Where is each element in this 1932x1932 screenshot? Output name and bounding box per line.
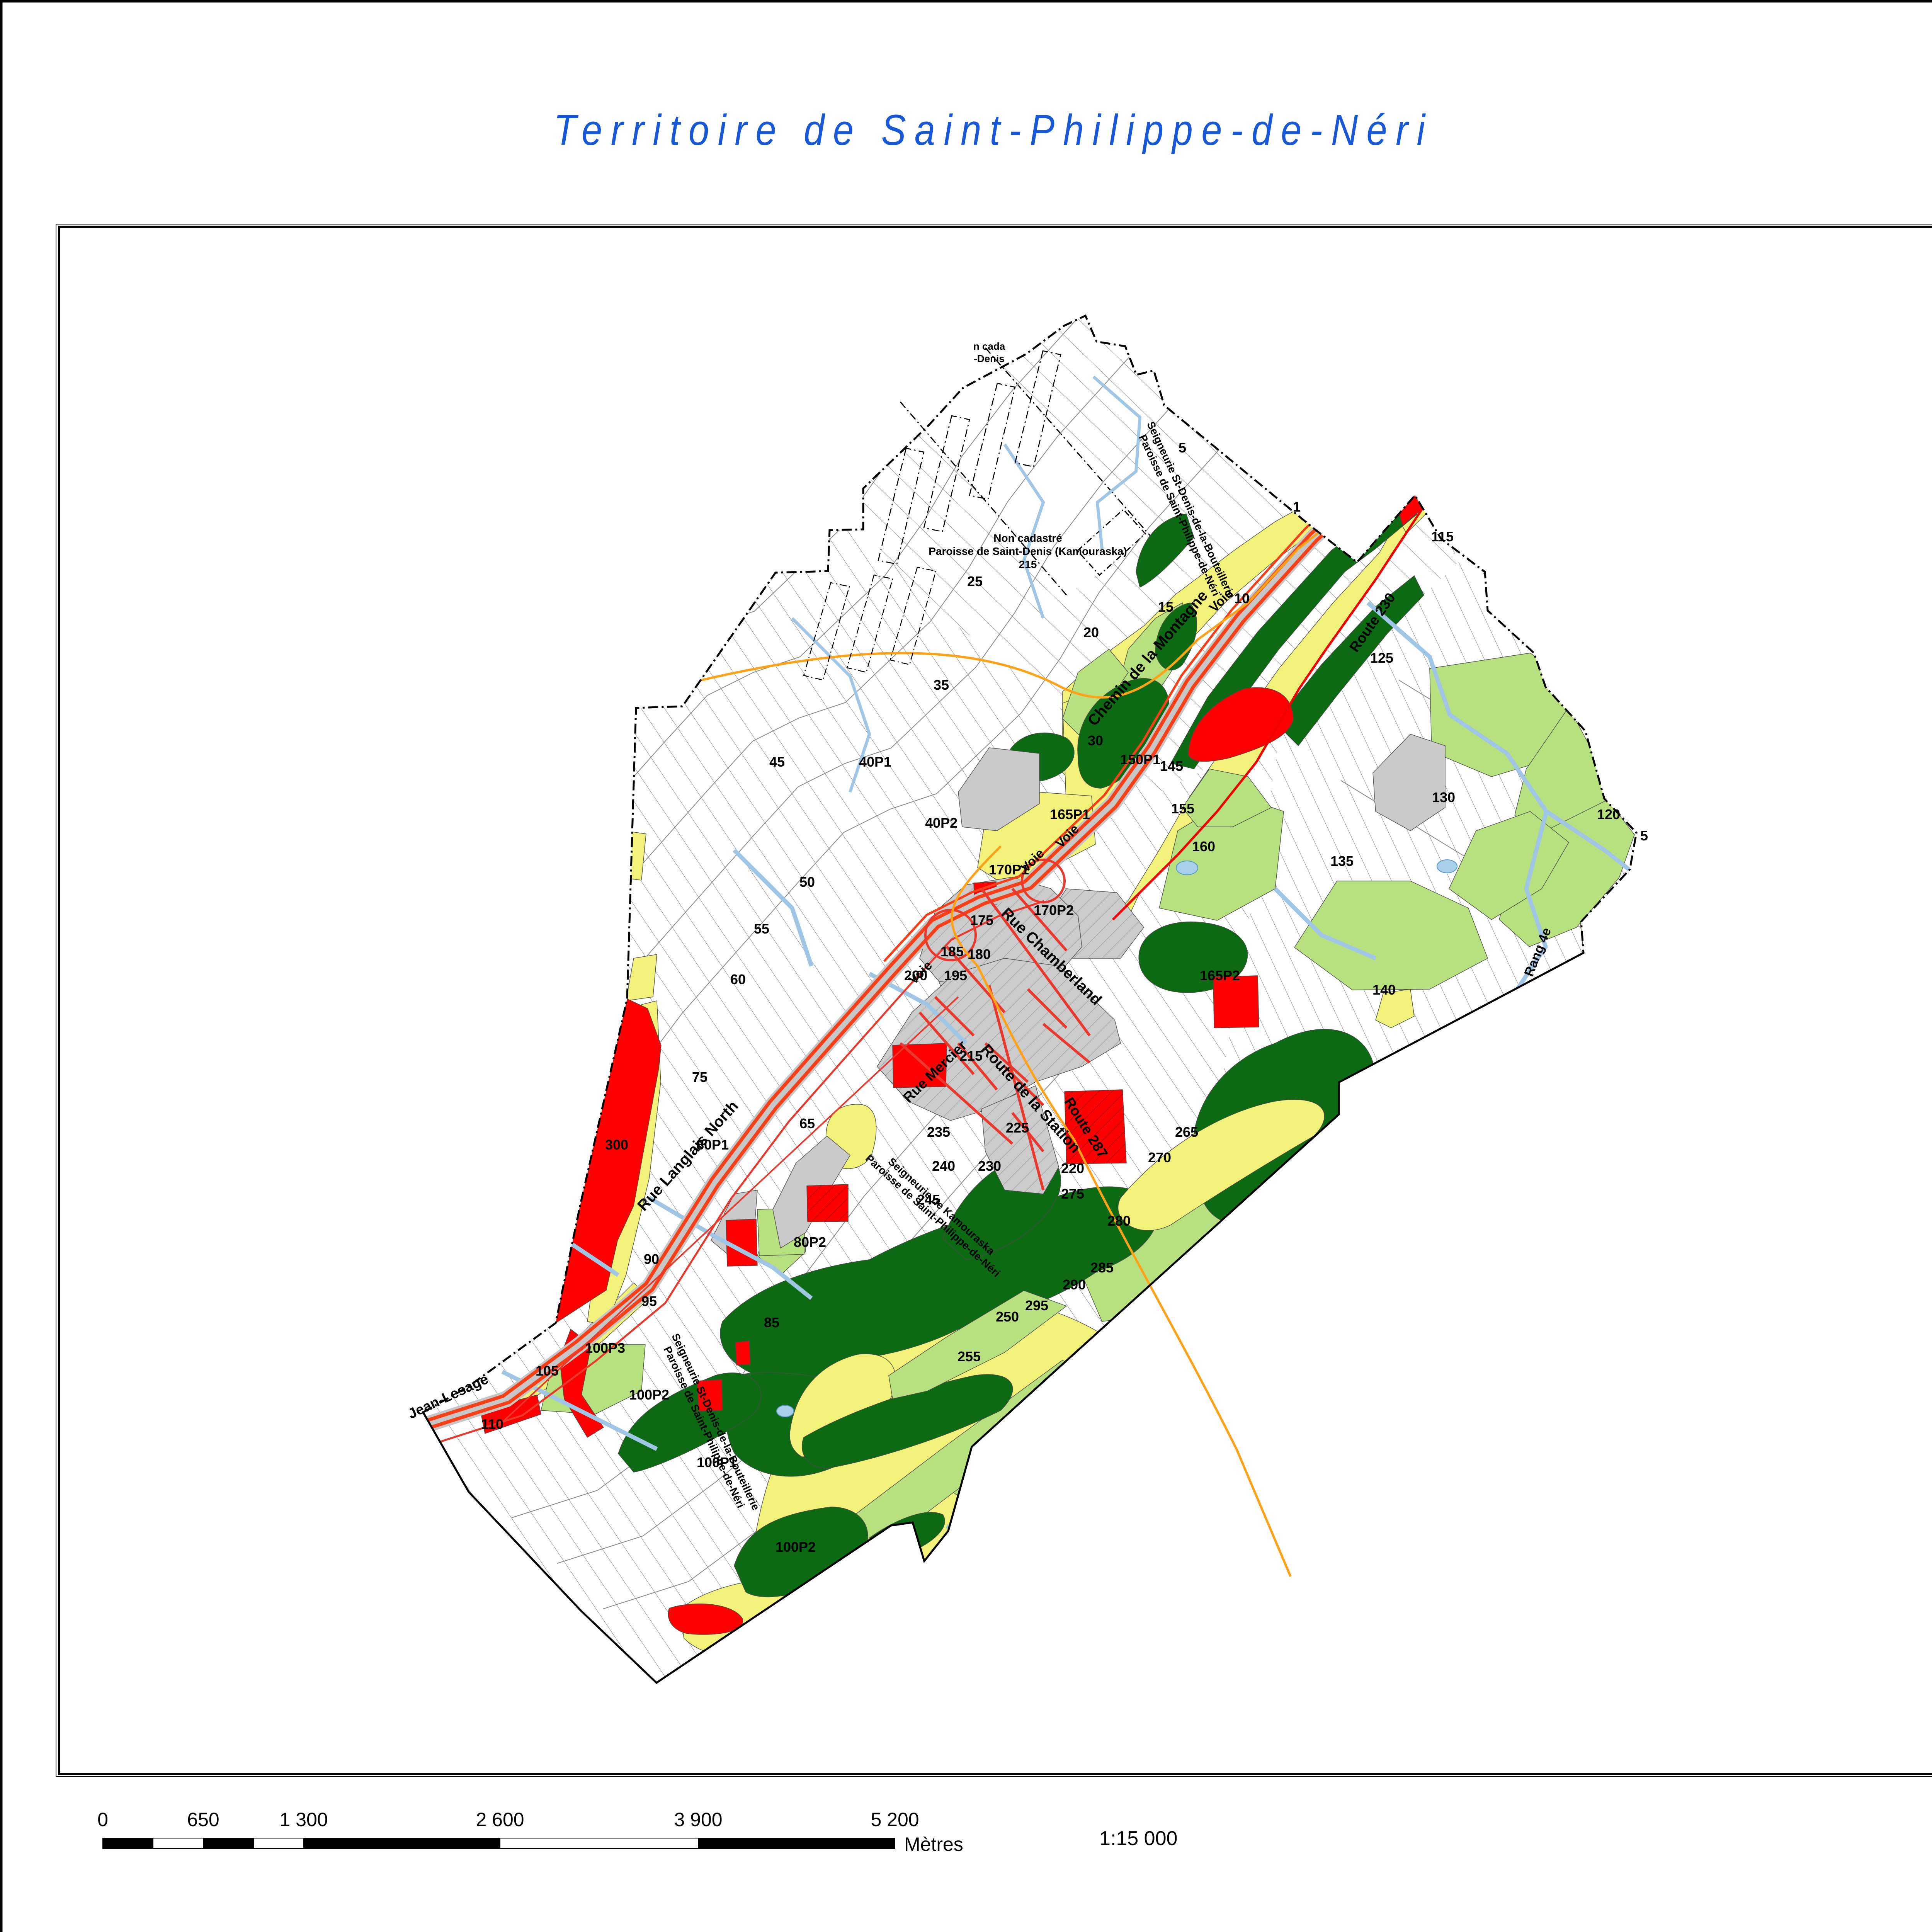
svg-text:265: 265: [1175, 1124, 1198, 1140]
svg-text:220: 220: [1061, 1160, 1084, 1176]
svg-text:650: 650: [187, 1809, 219, 1830]
svg-text:275: 275: [1061, 1186, 1084, 1202]
svg-text:215: 215: [1019, 558, 1037, 570]
svg-text:75: 75: [692, 1069, 707, 1085]
svg-text:90: 90: [644, 1251, 659, 1267]
svg-text:295: 295: [1025, 1298, 1048, 1313]
svg-text:60: 60: [730, 971, 746, 987]
svg-text:185: 185: [940, 944, 964, 959]
svg-text:105: 105: [536, 1363, 559, 1379]
svg-text:50: 50: [799, 874, 815, 890]
svg-text:1: 1: [1293, 499, 1301, 515]
svg-text:100P3: 100P3: [585, 1340, 625, 1356]
svg-text:180: 180: [968, 946, 991, 962]
svg-text:140: 140: [1372, 982, 1396, 998]
svg-text:110: 110: [481, 1416, 503, 1432]
svg-text:165P2: 165P2: [1200, 968, 1240, 983]
svg-text:Mètres: Mètres: [904, 1833, 963, 1855]
svg-text:230: 230: [978, 1158, 1001, 1174]
svg-text:165P1: 165P1: [1050, 806, 1090, 822]
svg-text:n cada: n cada: [973, 340, 1005, 352]
svg-text:Territoire de Saint-Philippe-d: Territoire de Saint-Philippe-de-Néri: [554, 106, 1434, 154]
svg-text:35: 35: [934, 677, 949, 693]
svg-text:285: 285: [1090, 1260, 1114, 1276]
svg-text:40P1: 40P1: [859, 754, 891, 770]
svg-text:3 900: 3 900: [674, 1809, 722, 1830]
svg-text:135: 135: [1330, 853, 1354, 869]
svg-text:20: 20: [1083, 624, 1099, 640]
svg-text:5: 5: [1179, 440, 1186, 456]
svg-text:30: 30: [1088, 733, 1103, 748]
svg-text:170P2: 170P2: [1034, 902, 1074, 918]
svg-text:255: 255: [957, 1349, 981, 1364]
svg-text:240: 240: [932, 1158, 955, 1174]
svg-text:65: 65: [799, 1116, 815, 1131]
svg-text:Paroisse de Saint-Denis (Kamou: Paroisse de Saint-Denis (Kamouraska): [929, 545, 1127, 557]
svg-text:15: 15: [1158, 599, 1173, 615]
svg-text:0: 0: [97, 1809, 108, 1830]
svg-text:2 600: 2 600: [476, 1809, 524, 1830]
svg-text:100P2: 100P2: [776, 1539, 816, 1555]
svg-text:100P2: 100P2: [629, 1387, 669, 1403]
svg-text:5 200: 5 200: [871, 1809, 919, 1830]
svg-text:300: 300: [605, 1137, 628, 1153]
svg-text:120: 120: [1597, 806, 1620, 822]
svg-text:Non cadastré: Non cadastré: [993, 532, 1062, 544]
svg-text:95: 95: [641, 1293, 657, 1309]
svg-text:45: 45: [769, 754, 785, 770]
svg-text:235: 235: [927, 1124, 950, 1140]
svg-text:150P1: 150P1: [1120, 752, 1160, 767]
svg-text:175: 175: [970, 912, 993, 928]
svg-text:5: 5: [1640, 828, 1648, 844]
svg-text:85: 85: [764, 1315, 779, 1330]
svg-text:280: 280: [1107, 1213, 1131, 1229]
svg-text:40P2: 40P2: [925, 815, 957, 831]
svg-text:80P2: 80P2: [794, 1234, 826, 1250]
svg-text:55: 55: [754, 921, 769, 937]
svg-text:290: 290: [1063, 1277, 1086, 1293]
svg-text:195: 195: [944, 968, 967, 983]
svg-text:1 300: 1 300: [279, 1809, 328, 1830]
svg-text:145: 145: [1160, 758, 1183, 774]
svg-text:270: 270: [1148, 1150, 1171, 1165]
svg-text:130: 130: [1432, 789, 1455, 805]
svg-text:-Denis: -Denis: [974, 353, 1004, 364]
svg-text:160: 160: [1192, 838, 1215, 854]
svg-text:250: 250: [996, 1309, 1019, 1325]
svg-text:25: 25: [967, 573, 983, 589]
svg-text:225: 225: [1006, 1120, 1029, 1136]
svg-text:115: 115: [1431, 529, 1454, 544]
svg-text:125: 125: [1370, 650, 1393, 666]
svg-text:155: 155: [1171, 801, 1194, 816]
svg-text:1:15 000: 1:15 000: [1099, 1827, 1177, 1850]
